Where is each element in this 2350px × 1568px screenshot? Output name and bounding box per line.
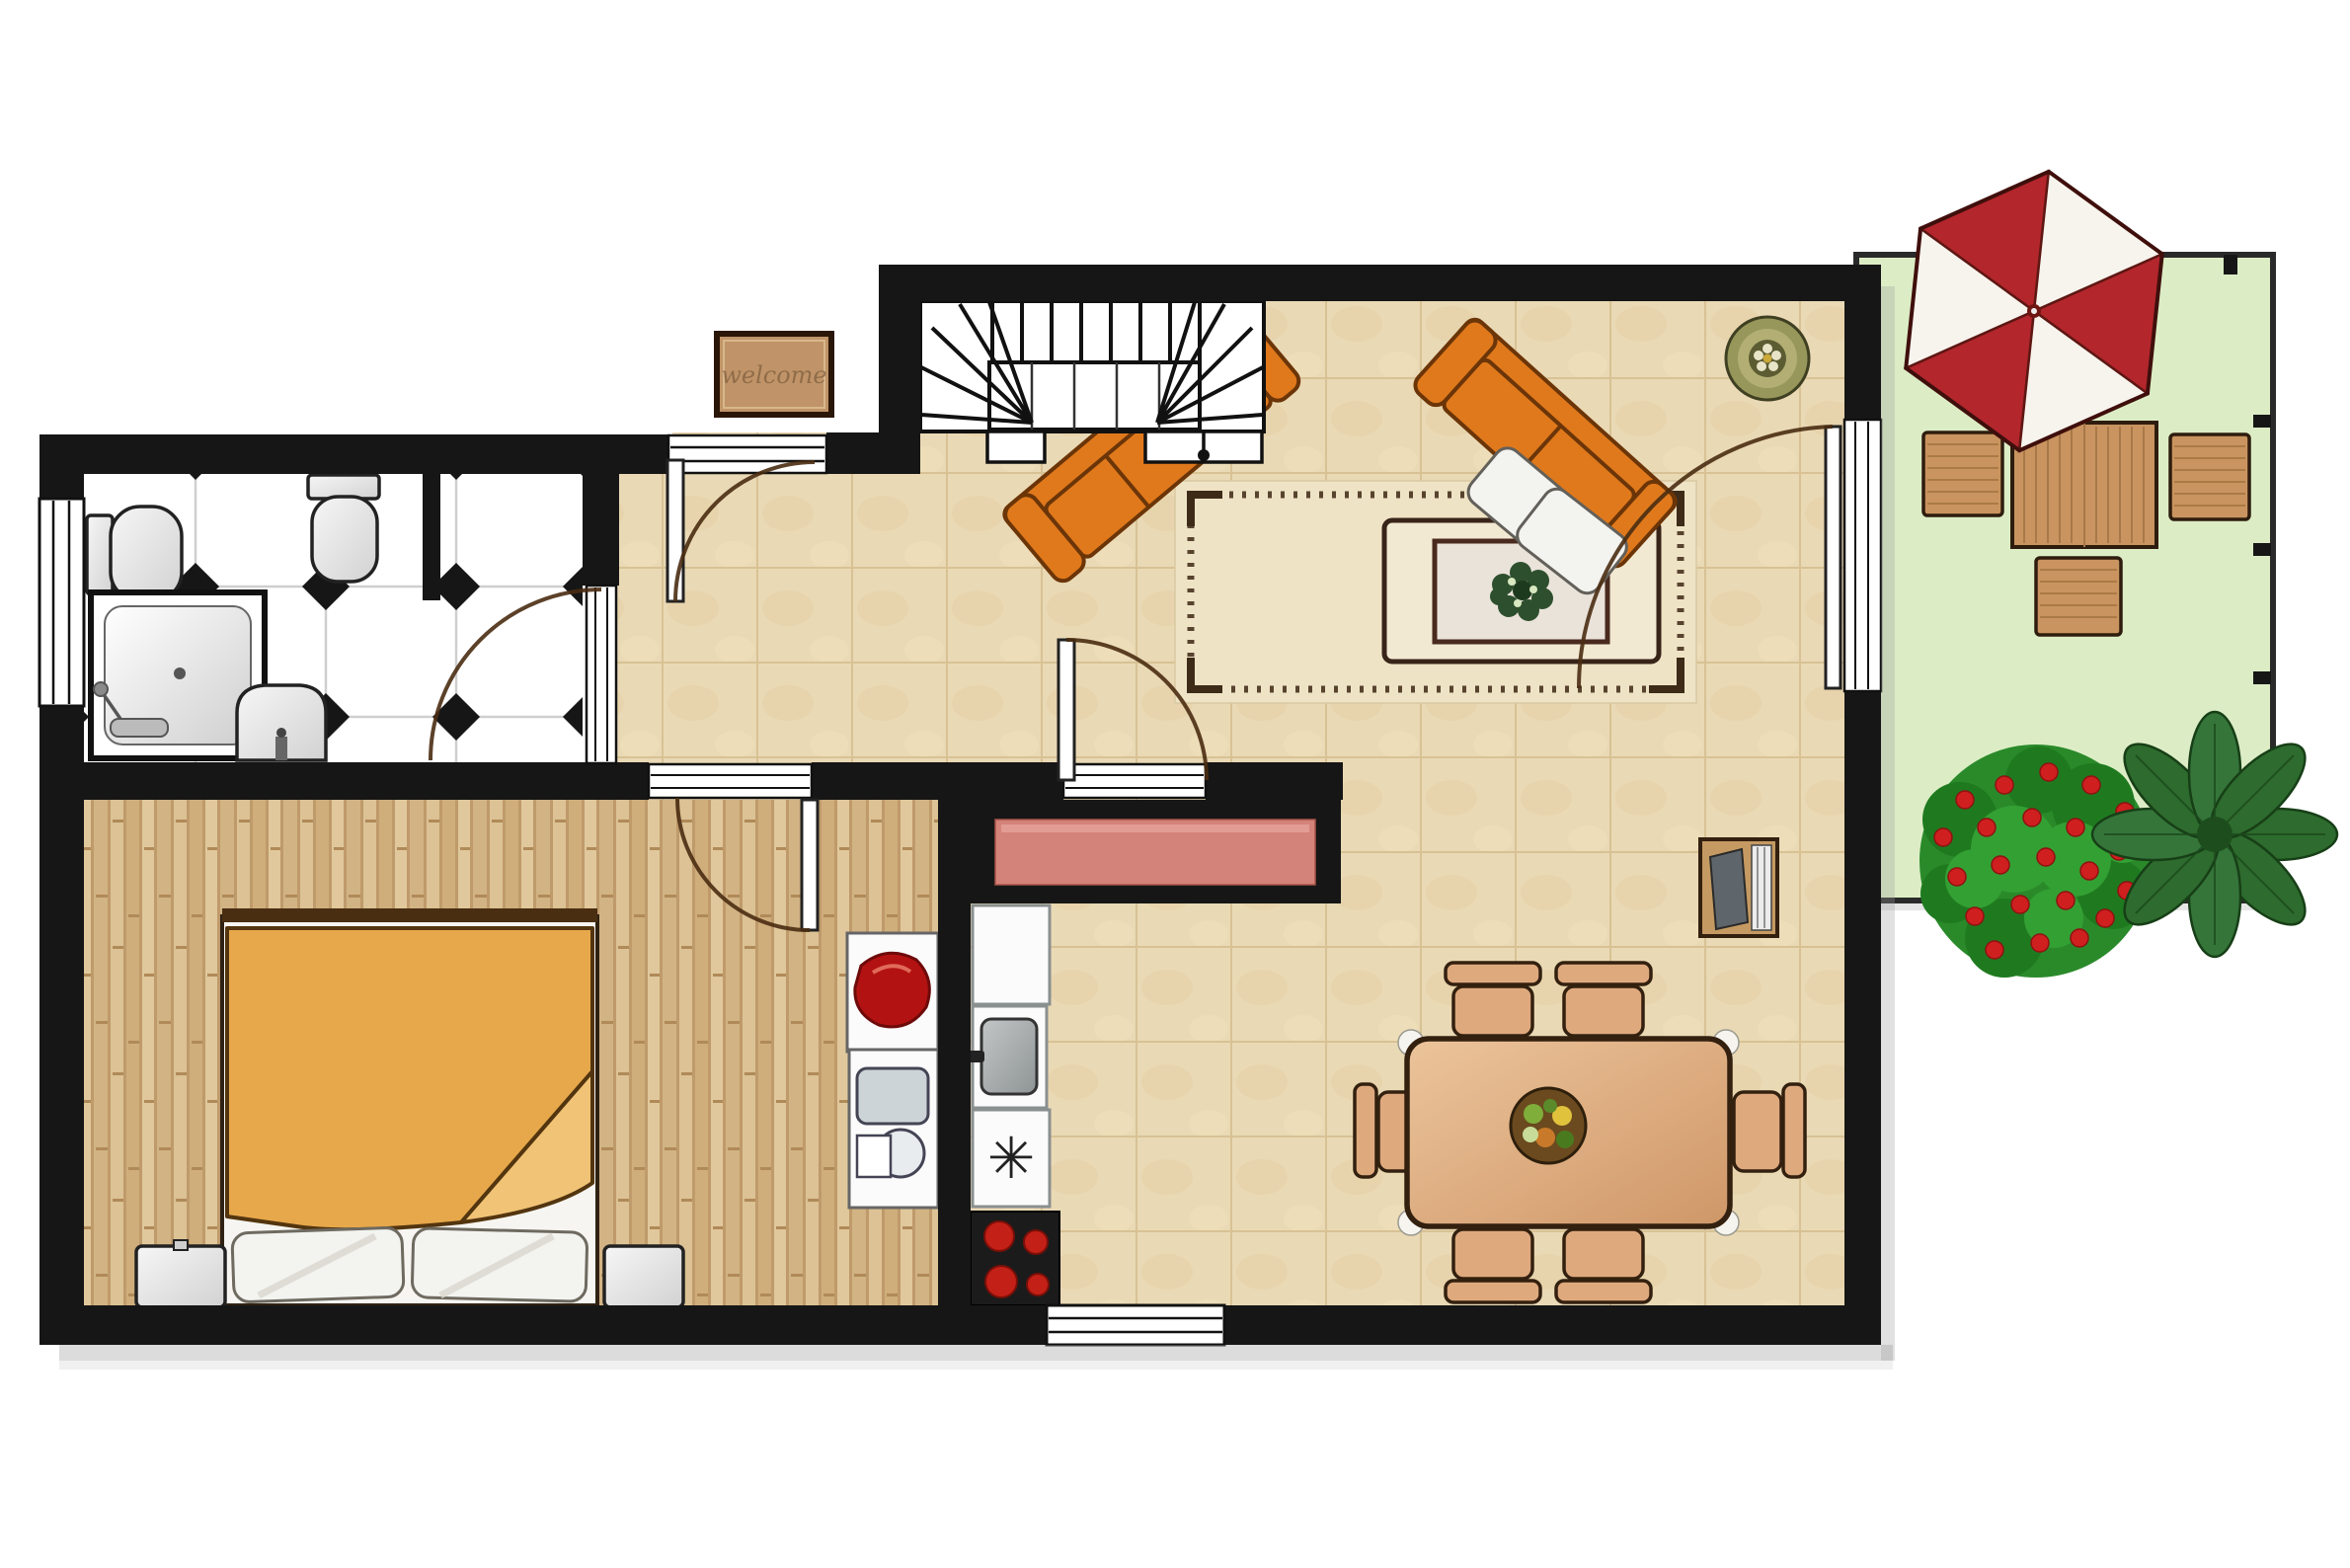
wall-kitchen-vertical: [938, 797, 971, 1305]
floor-plan: ✳: [0, 0, 2350, 1568]
bathroom-window: [39, 499, 84, 706]
wall-bathroom-bottom: [39, 762, 649, 800]
toilet: [87, 507, 182, 601]
leafy-plant: [2092, 712, 2337, 957]
dining-chair: [1734, 1084, 1805, 1177]
rose-bush: [1919, 745, 2153, 978]
kitchen-door-threshold: [1063, 764, 1206, 798]
plant-center: [2197, 817, 2232, 852]
stair-rail-post: [1198, 449, 1210, 461]
wall-bottom-west: [39, 1305, 1047, 1345]
patio-chair-left: [1923, 432, 2002, 515]
front-door-threshold: [668, 435, 826, 473]
floor-plan-drawing: ✳: [0, 0, 2350, 1568]
stair-first-step-up: [987, 431, 1045, 462]
kitchen-window: [1047, 1305, 1224, 1345]
shower-drain: [174, 667, 186, 679]
patio-door-leaf: [1826, 427, 1841, 688]
wall-bidet-stub: [423, 474, 440, 600]
bedroom-door-leaf: [802, 800, 818, 930]
bedroom-door-threshold: [649, 764, 812, 798]
nightstand-right: [604, 1246, 683, 1307]
nightstand-left: [136, 1246, 225, 1307]
shower-wand: [111, 719, 168, 737]
counter-highlight: [1001, 824, 1309, 832]
wall-bottom-east: [1224, 1305, 1881, 1345]
wall-right-bottom: [1844, 691, 1881, 1345]
dining-chair: [1556, 963, 1651, 1036]
fruit-bowl: [1511, 1088, 1586, 1163]
kitchen-door-leaf: [1058, 640, 1074, 780]
sink-faucet: [275, 737, 287, 760]
bidet: [308, 475, 379, 582]
wall-right-top: [1844, 265, 1881, 420]
wall-top: [879, 265, 1881, 301]
wall-hall-kitchen-east: [1206, 762, 1343, 800]
wall-bathroom-right: [583, 451, 619, 586]
kitchen-sink-basin: [981, 1019, 1037, 1094]
patio-door-threshold: [1844, 420, 1881, 691]
doormat: welcome: [714, 331, 834, 418]
freezer-symbol: ✳: [987, 1125, 1036, 1192]
bed-headboard: [222, 908, 597, 922]
tv-screen: [1710, 849, 1748, 929]
bathroom-sink: [237, 685, 326, 760]
wall-bathroom-top: [39, 434, 668, 474]
stove: [971, 1212, 1059, 1305]
dining-chair: [1446, 963, 1540, 1036]
wall-entry-right: [826, 432, 879, 474]
dining-chair: [1446, 1229, 1540, 1302]
fridge: [973, 905, 1050, 1004]
exterior-area: [0, 0, 672, 434]
patio-chair-bottom: [2036, 558, 2121, 635]
tv-cabinet: [1700, 839, 1777, 936]
round-plant-basket: [1726, 317, 1809, 400]
bathroom-door-threshold: [587, 586, 616, 763]
dining-chair: [1556, 1229, 1651, 1302]
laundry-units: [847, 933, 938, 1208]
patio-chair-right: [2170, 434, 2249, 519]
wall-hall-kitchen-west: [812, 762, 1063, 800]
doormat-text: welcome: [721, 361, 826, 389]
